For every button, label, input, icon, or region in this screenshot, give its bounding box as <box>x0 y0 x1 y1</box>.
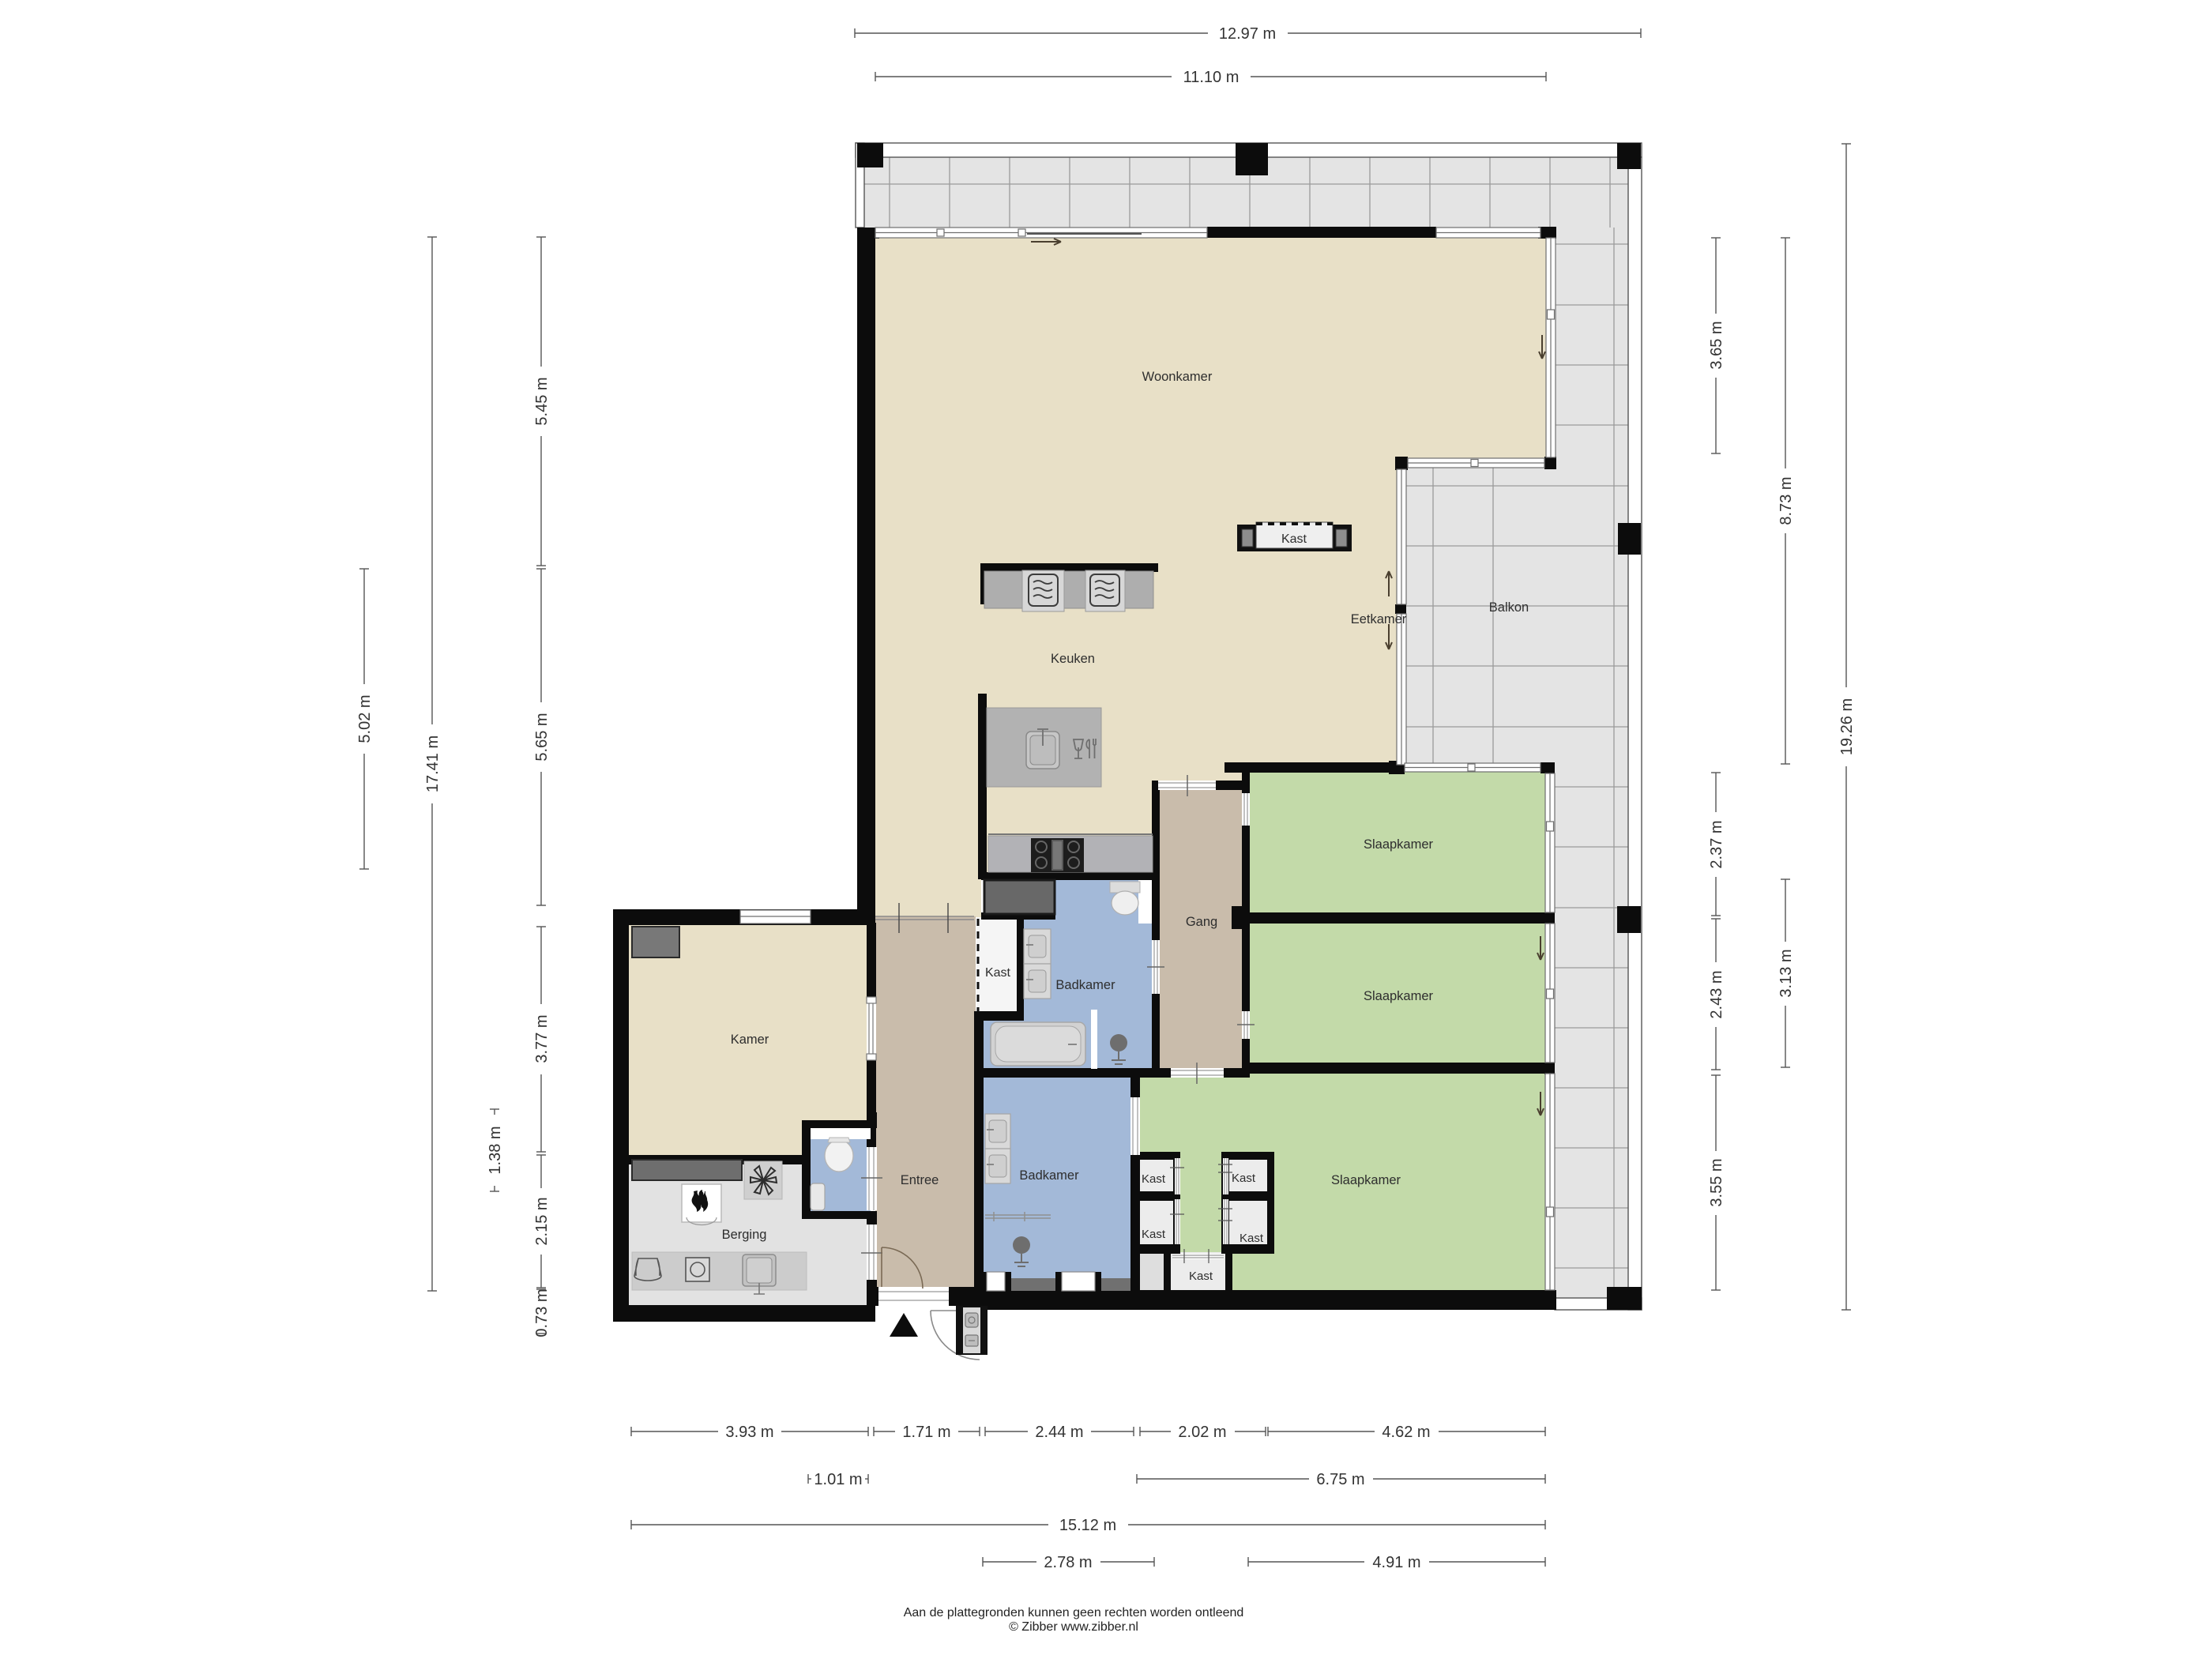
svg-text:Gang: Gang <box>1186 915 1217 929</box>
svg-text:Kast: Kast <box>1232 1172 1256 1185</box>
svg-text:11.10 m: 11.10 m <box>1183 69 1240 86</box>
svg-text:Balkon: Balkon <box>1489 600 1529 615</box>
svg-text:17.41 m: 17.41 m <box>424 735 442 792</box>
svg-text:Kamer: Kamer <box>731 1033 769 1047</box>
svg-text:Kast: Kast <box>1142 1228 1166 1241</box>
svg-text:6.75 m: 6.75 m <box>1316 1471 1364 1488</box>
svg-text:2.02 m: 2.02 m <box>1178 1424 1226 1441</box>
svg-text:1.38 m: 1.38 m <box>487 1126 504 1174</box>
svg-text:Woonkamer: Woonkamer <box>1142 370 1213 384</box>
svg-text:4.62 m: 4.62 m <box>1382 1424 1430 1441</box>
svg-text:2.15 m: 2.15 m <box>533 1197 551 1245</box>
svg-text:Badkamer: Badkamer <box>1019 1168 1079 1183</box>
svg-text:8.73 m: 8.73 m <box>1777 476 1795 525</box>
svg-text:Aan de plattegronden kunnen ge: Aan de plattegronden kunnen geen rechten… <box>904 1606 1244 1619</box>
svg-text:© Zibber www.zibber.nl: © Zibber www.zibber.nl <box>1009 1620 1138 1634</box>
svg-text:3.65 m: 3.65 m <box>1708 321 1725 369</box>
svg-text:Keuken: Keuken <box>1051 652 1095 666</box>
svg-text:Slaapkamer: Slaapkamer <box>1364 837 1434 852</box>
svg-text:3.13 m: 3.13 m <box>1777 949 1795 997</box>
svg-text:15.12 m: 15.12 m <box>1059 1517 1116 1534</box>
svg-text:Kast: Kast <box>1281 532 1307 546</box>
svg-text:2.37 m: 2.37 m <box>1708 820 1725 868</box>
svg-text:2.44 m: 2.44 m <box>1035 1424 1083 1441</box>
svg-text:Slaapkamer: Slaapkamer <box>1331 1173 1401 1187</box>
svg-text:Berging: Berging <box>722 1228 767 1242</box>
svg-text:1.01 m: 1.01 m <box>814 1471 862 1488</box>
svg-text:Kast: Kast <box>1240 1232 1264 1245</box>
svg-text:Slaapkamer: Slaapkamer <box>1364 989 1434 1003</box>
svg-text:2.78 m: 2.78 m <box>1044 1554 1092 1571</box>
svg-text:5.02 m: 5.02 m <box>356 694 374 743</box>
svg-text:Kast: Kast <box>1189 1270 1213 1283</box>
svg-text:Kast: Kast <box>1142 1172 1166 1186</box>
svg-text:3.93 m: 3.93 m <box>725 1424 773 1441</box>
svg-text:3.77 m: 3.77 m <box>533 1014 551 1063</box>
svg-text:1.71 m: 1.71 m <box>902 1424 950 1441</box>
svg-text:19.26 m: 19.26 m <box>1838 698 1856 755</box>
svg-text:2.43 m: 2.43 m <box>1708 970 1725 1018</box>
svg-text:5.65 m: 5.65 m <box>533 713 551 761</box>
svg-text:0.73 m: 0.73 m <box>533 1288 551 1337</box>
svg-text:Eetkamer: Eetkamer <box>1351 612 1407 626</box>
svg-text:12.97 m: 12.97 m <box>1219 25 1276 43</box>
svg-text:Entree: Entree <box>901 1173 939 1187</box>
svg-text:4.91 m: 4.91 m <box>1372 1554 1420 1571</box>
svg-text:5.45 m: 5.45 m <box>533 377 551 425</box>
svg-text:Badkamer: Badkamer <box>1055 978 1115 992</box>
svg-text:Kast: Kast <box>985 966 1011 980</box>
svg-text:3.55 m: 3.55 m <box>1708 1158 1725 1206</box>
